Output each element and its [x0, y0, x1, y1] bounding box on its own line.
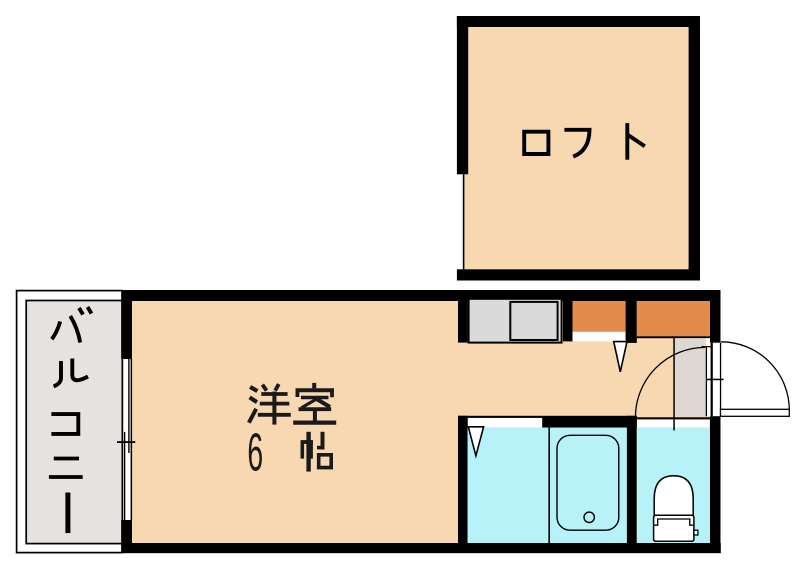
svg-text:6: 6 — [247, 423, 263, 483]
